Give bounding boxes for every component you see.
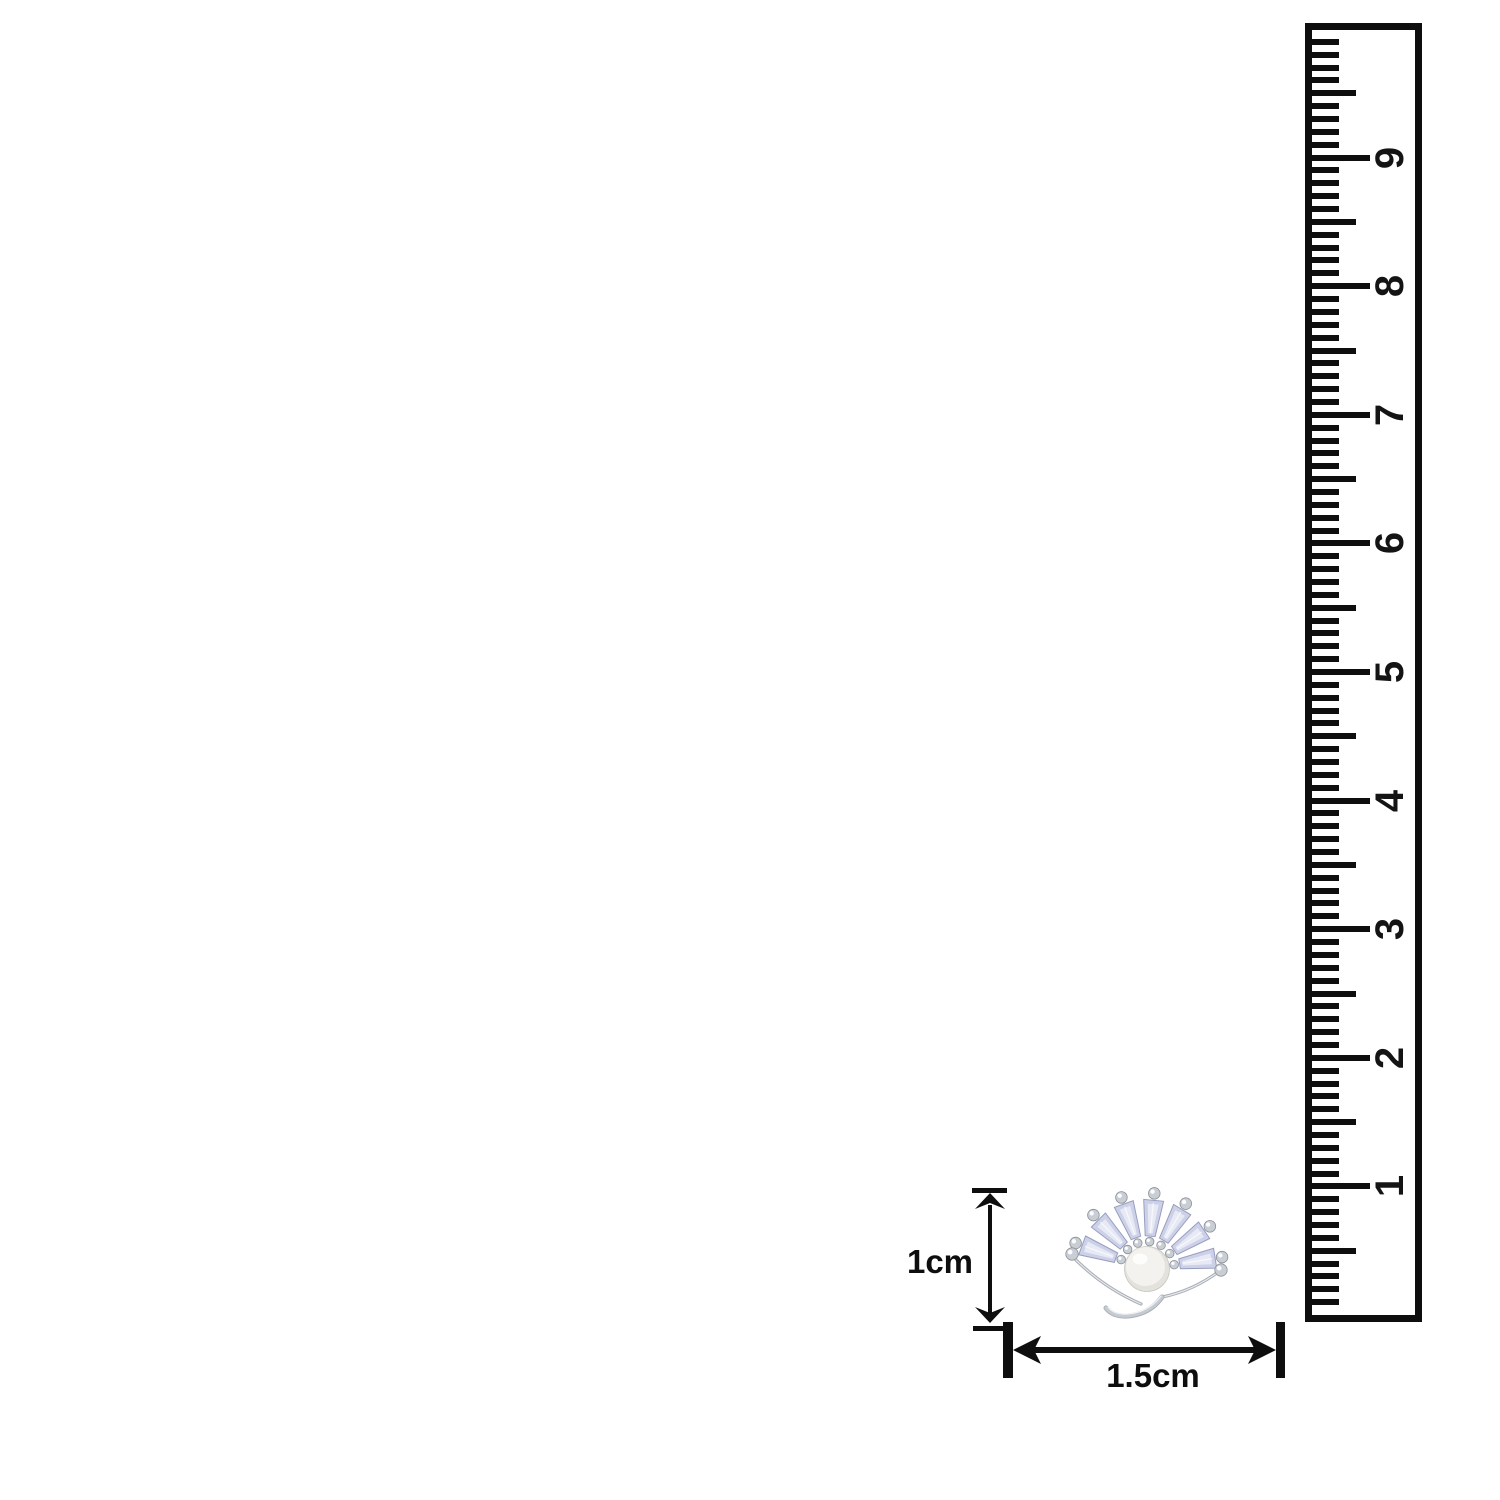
ruler-number-7: 7	[1368, 393, 1412, 437]
ruler-number-8: 8	[1368, 264, 1412, 308]
silver-bead	[1204, 1221, 1216, 1233]
pearl	[1125, 1247, 1170, 1292]
ruler-number-1: 1	[1368, 1164, 1412, 1208]
silver-bead	[1070, 1237, 1082, 1249]
width-left-terminator	[1003, 1322, 1013, 1378]
jewelry-image	[1050, 1180, 1250, 1330]
silver-bead	[1148, 1188, 1160, 1200]
ruler-number-4: 4	[1368, 779, 1412, 823]
width-dimension-line	[1033, 1347, 1257, 1353]
silver-bead	[1066, 1248, 1078, 1260]
ruler-number-3: 3	[1368, 907, 1412, 951]
product-size-guide-image: 123456789 1cm	[0, 0, 1500, 1500]
silver-bead	[1133, 1239, 1142, 1248]
silver-bead	[1117, 1255, 1126, 1264]
silver-bead	[1157, 1241, 1166, 1250]
silver-bead	[1116, 1192, 1128, 1204]
ruler-number-2: 2	[1368, 1036, 1412, 1080]
silver-bead	[1216, 1251, 1228, 1263]
silver-bead	[1165, 1249, 1174, 1258]
silver-bead	[1145, 1237, 1154, 1246]
width-dimension-label: 1.5cm	[1096, 1357, 1210, 1395]
silver-bead	[1170, 1260, 1179, 1269]
ruler-number-6: 6	[1368, 521, 1412, 565]
height-dimension-label: 1cm	[896, 1243, 984, 1281]
silver-bead	[1088, 1209, 1100, 1221]
ruler-number-5: 5	[1368, 650, 1412, 694]
silver-bead	[1215, 1264, 1227, 1276]
jewelry-stem	[1106, 1296, 1162, 1316]
ruler-number-9: 9	[1368, 136, 1412, 180]
silver-bead	[1123, 1245, 1132, 1254]
height-top-cap	[972, 1188, 1007, 1193]
width-right-terminator	[1276, 1322, 1285, 1378]
ruler: 123456789	[1305, 23, 1422, 1322]
silver-bead	[1180, 1198, 1192, 1210]
ruler-numbers: 123456789	[1312, 30, 1415, 1315]
